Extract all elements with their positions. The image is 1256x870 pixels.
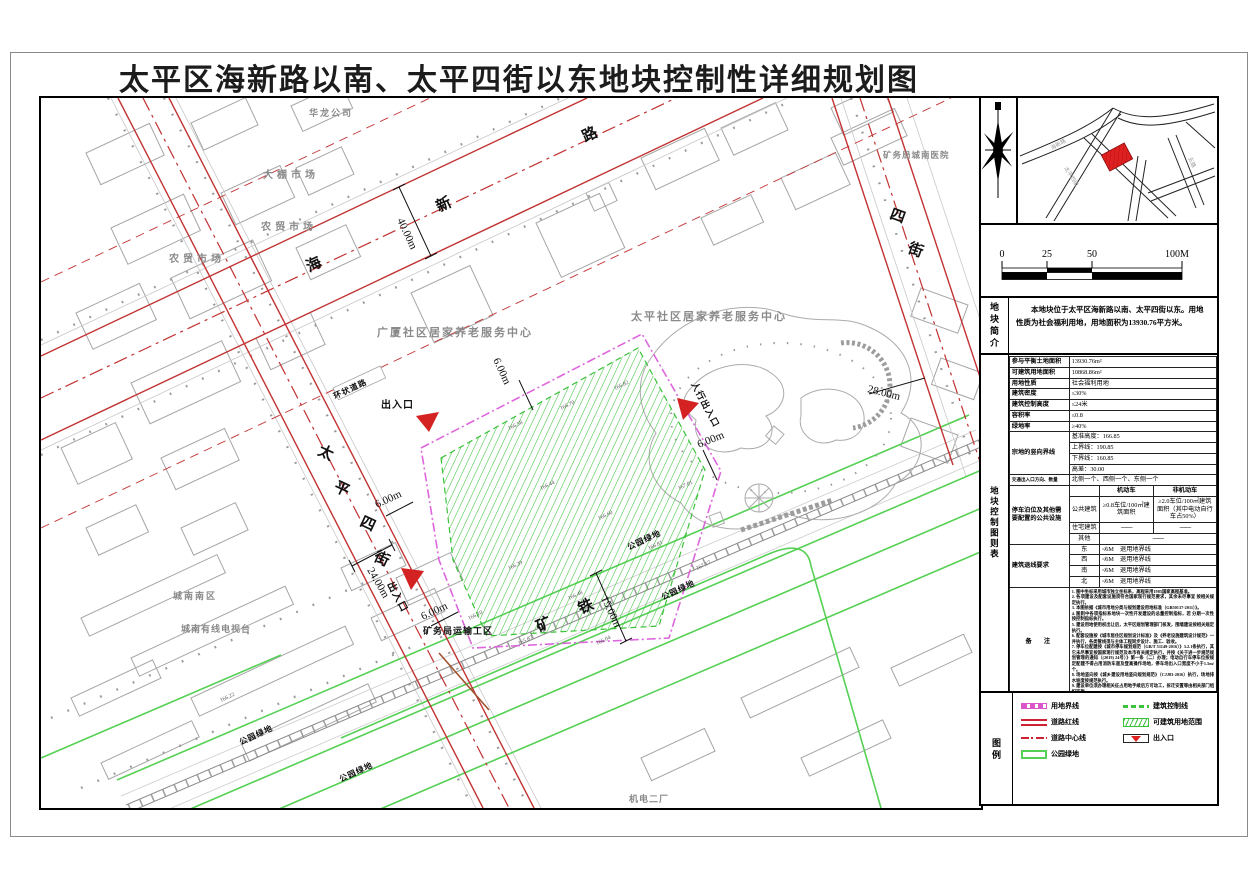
location-inset-map: 太平四街 海新路 五路 bbox=[1018, 98, 1217, 223]
legend-plot-boundary: 用地界线 bbox=[1021, 701, 1079, 711]
label-entrance-southwest: 出入口 bbox=[384, 579, 411, 614]
road-redline-swatch bbox=[1021, 719, 1047, 726]
scale-tick-100: 100M bbox=[1165, 249, 1189, 260]
map-canvas: 华龙公司 大棚市场 农贸市场 农贸市场 矿务局城南医院 广厦社区居家养老服务中心… bbox=[39, 96, 983, 810]
label-jidian: 机电二厂 bbox=[629, 793, 669, 804]
char-jie2: 街 bbox=[905, 239, 926, 261]
entrance-arrow-east bbox=[677, 398, 699, 420]
legend-label: 出入口 bbox=[1153, 733, 1174, 743]
intro-text: 本地块位于太平区海新路以南、太平四街以东。用地性质为社会福利用地，用地面积为13… bbox=[1009, 298, 1217, 353]
legend-park-green: 公园绿地 bbox=[1021, 749, 1079, 759]
control-indicator-table: 参与平衡土地面积13930.76m² 可建筑用地面积10868.86m² 用地性… bbox=[1009, 356, 1217, 693]
entrance-triangle-icon bbox=[1131, 736, 1141, 742]
label-tv: 城南有线电视台 bbox=[181, 623, 251, 634]
notes-cell: 1. 图中坐标采用城市独立坐标系，高程采用1985国家高程基准。 2. 各项建设… bbox=[1069, 587, 1216, 693]
scale-bar-row: 0 25 50 100M bbox=[981, 225, 1217, 298]
dim-6m-southwest: 6.00m bbox=[419, 600, 450, 623]
label-guangsha: 广厦社区居家养老服务中心 bbox=[377, 325, 533, 339]
legend-side-label: 图例 bbox=[990, 738, 1003, 762]
label-entrance-west: 出入口 bbox=[381, 398, 414, 411]
legend-label: 可建筑用地范围 bbox=[1153, 717, 1202, 727]
char-si2: 四 bbox=[888, 207, 908, 227]
plan-map-svg: 华龙公司 大棚市场 农贸市场 农贸市场 矿务局城南医院 广厦社区居家养老服务中心… bbox=[41, 98, 981, 808]
label-green4: 公园绿地 bbox=[338, 760, 375, 784]
label-nongmao1: 农贸市场 bbox=[260, 220, 317, 233]
legend-items: 用地界线 道路红线 道路中心线 公园绿地 建筑控制线 bbox=[1013, 693, 1217, 806]
char-xin: 新 bbox=[433, 193, 454, 216]
scale-bar: 0 25 50 100M bbox=[981, 225, 1217, 296]
label-hualong: 华龙公司 bbox=[309, 107, 353, 118]
north-and-inset-row: 太平四街 海新路 五路 bbox=[981, 98, 1217, 225]
svg-text:166.04: 166.04 bbox=[595, 635, 612, 647]
legend-label: 公园绿地 bbox=[1051, 749, 1079, 759]
plot-boundary-swatch bbox=[1021, 703, 1047, 709]
inset-street-label: 太平四街 bbox=[1062, 165, 1081, 188]
building-control-swatch bbox=[1123, 705, 1149, 708]
entrance-arrow-west bbox=[416, 412, 439, 432]
char-ping: 平 bbox=[331, 478, 352, 500]
north-arrow-icon bbox=[981, 98, 1016, 221]
page-title: 太平区海新路以南、太平四街以东地块控制性详细规划图 bbox=[49, 55, 989, 99]
legend-row: 图例 用地界线 道路红线 道路中心线 公园绿地 bbox=[981, 693, 1217, 806]
entrance-swatch bbox=[1123, 734, 1149, 743]
legend-buildable-range: 可建筑用地范围 bbox=[1123, 717, 1202, 727]
intro-side-label: 地块简介 bbox=[988, 302, 1001, 350]
legend-road-centerline: 道路中心线 bbox=[1021, 733, 1086, 743]
legend-label: 道路红线 bbox=[1051, 717, 1079, 727]
label-taiping-center: 太平社区居家养老服务中心 bbox=[630, 309, 787, 323]
info-panel: 太平四街 海新路 五路 0 25 50 100M bbox=[979, 96, 1219, 806]
char-tai: 太 bbox=[315, 441, 337, 464]
dim-6m-east: 6.00m bbox=[696, 429, 727, 451]
label-dapeng: 大棚市场 bbox=[263, 168, 319, 181]
legend-building-control-line: 建筑控制线 bbox=[1123, 701, 1188, 711]
label-transport: 矿务局运输工区 bbox=[423, 625, 493, 636]
intro-side-label-col: 地块简介 bbox=[981, 298, 1009, 353]
label-hospital: 矿务局城南医院 bbox=[883, 150, 950, 160]
plan-sheet: 太平区海新路以南、太平四街以东地块控制性详细规划图 bbox=[10, 52, 1248, 837]
label-nongmao2: 农贸市场 bbox=[168, 252, 225, 265]
buildable-range-swatch bbox=[1123, 718, 1149, 727]
control-table-row: 地块控制图则表 参与平衡土地面积13930.76m² 可建筑用地面积10868.… bbox=[981, 355, 1217, 693]
char-si: 四 bbox=[357, 514, 377, 535]
svg-text:166.22: 166.22 bbox=[219, 692, 236, 704]
legend-side-label-col: 图例 bbox=[981, 693, 1013, 806]
legend-label: 道路中心线 bbox=[1051, 733, 1086, 743]
table-side-label: 地块控制图则表 bbox=[988, 486, 1000, 560]
plot-intro-row: 地块简介 本地块位于太平区海新路以南、太平四街以东。用地性质为社会福利用地，用地… bbox=[981, 298, 1217, 355]
north-arrow-box bbox=[981, 98, 1018, 223]
char-hai: 海 bbox=[303, 253, 324, 276]
table-side-label-col: 地块控制图则表 bbox=[981, 355, 1009, 691]
road-centerline-swatch bbox=[1021, 737, 1047, 739]
scale-tick-0: 0 bbox=[1000, 249, 1005, 260]
legend-label: 用地界线 bbox=[1051, 701, 1079, 711]
park-green-swatch bbox=[1021, 750, 1047, 759]
label-chengnan-nanqu: 城南南区 bbox=[173, 590, 217, 601]
scale-tick-25: 25 bbox=[1042, 249, 1052, 260]
legend-entrance: 出入口 bbox=[1123, 733, 1174, 743]
dim-6m-north: 6.00m bbox=[490, 356, 513, 387]
inset-map-svg: 太平四街 海新路 五路 bbox=[1018, 98, 1217, 221]
svg-text:167.17: 167.17 bbox=[695, 560, 712, 572]
legend-road-redline: 道路红线 bbox=[1021, 717, 1079, 727]
inset-road-label2: 五路 bbox=[1186, 155, 1198, 169]
legend-label: 建筑控制线 bbox=[1153, 701, 1188, 711]
scale-tick-50: 50 bbox=[1087, 249, 1097, 260]
